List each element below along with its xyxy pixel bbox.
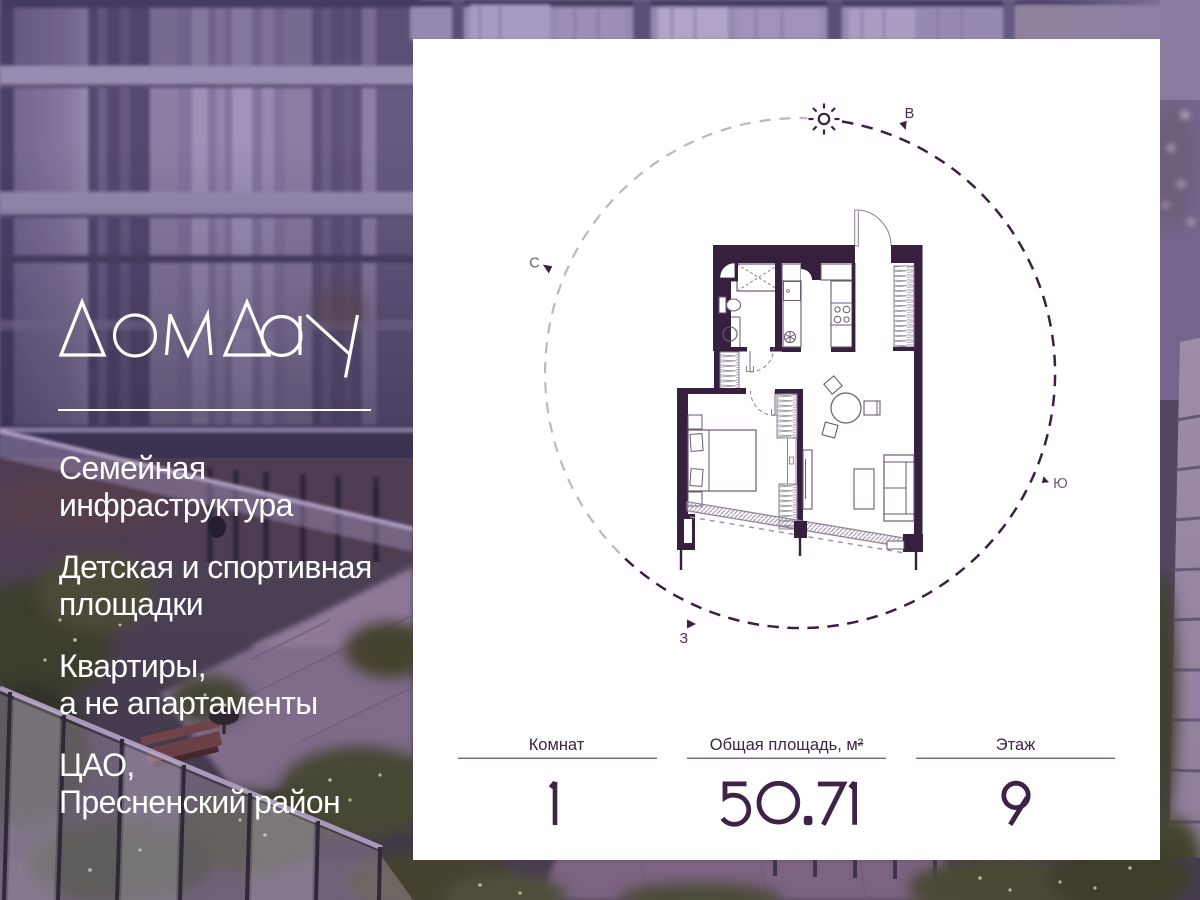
svg-text:Комнат: Комнат — [529, 736, 585, 754]
svg-text:Общая площадь, м²: Общая площадь, м² — [710, 736, 864, 754]
svg-text:З: З — [679, 631, 688, 647]
svg-text:В: В — [905, 106, 915, 122]
svg-text:Ю: Ю — [1053, 476, 1068, 492]
svg-text:Этаж: Этаж — [996, 736, 1035, 754]
svg-text:С: С — [529, 256, 539, 272]
